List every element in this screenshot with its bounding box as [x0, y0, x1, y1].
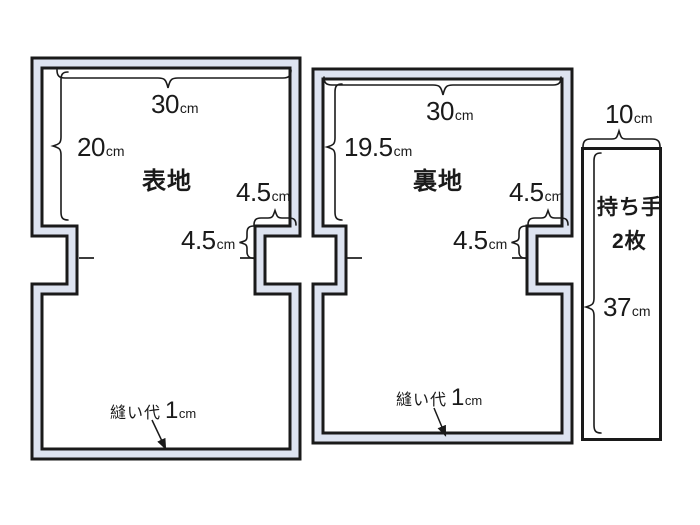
handle-name-label: 持ち手 [597, 197, 663, 218]
handle-height-label: 37cm [603, 294, 651, 320]
outer-height-label: 20cm [77, 134, 125, 160]
outer-name-label: 表地 [142, 170, 192, 194]
handle-width-label: 10cm [605, 101, 653, 127]
lining-notch-width-label: 4.5cm [509, 179, 563, 205]
lining-height-label: 19.5cm [344, 134, 412, 160]
lining-width-label: 30cm [426, 98, 474, 124]
outer-notch-height-label: 4.5cm [181, 227, 235, 253]
lining-name-label: 裏地 [413, 170, 463, 194]
outer-width-label: 30cm [151, 91, 199, 117]
handle-count-label: 2枚 [612, 231, 647, 252]
pattern-diagram: 30cm 20cm 表地 4.5cm 4.5cm 縫い代1cm 30cm 19.… [0, 0, 700, 525]
pattern-shapes [0, 0, 700, 525]
lining-notch-height-label: 4.5cm [453, 227, 507, 253]
outer-seam-label: 縫い代1cm [110, 399, 196, 423]
outer-fabric-outline [37, 63, 295, 454]
handle-width-brace [583, 131, 660, 147]
outer-notch-width-label: 4.5cm [236, 179, 290, 205]
lining-seam-label: 縫い代1cm [396, 386, 482, 410]
